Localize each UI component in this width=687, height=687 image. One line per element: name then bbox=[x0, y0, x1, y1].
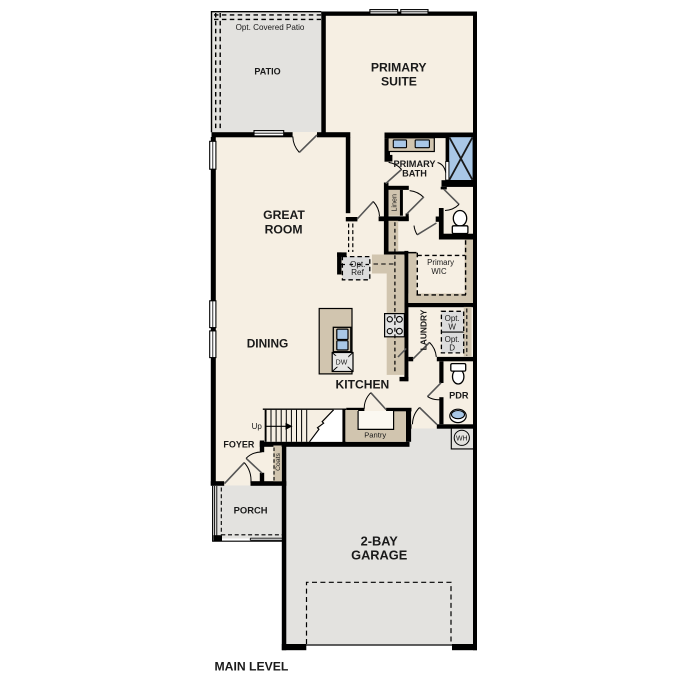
svg-text:LAUNDRY: LAUNDRY bbox=[418, 309, 428, 350]
svg-text:WIC: WIC bbox=[431, 267, 447, 276]
svg-text:DINING: DINING bbox=[247, 337, 289, 351]
svg-text:PRIMARY: PRIMARY bbox=[393, 159, 435, 169]
svg-text:DW: DW bbox=[336, 360, 348, 367]
svg-text:FOYER: FOYER bbox=[223, 440, 255, 450]
svg-text:Up: Up bbox=[252, 422, 263, 431]
svg-text:Primary: Primary bbox=[427, 258, 454, 267]
svg-text:GARAGE: GARAGE bbox=[351, 548, 408, 563]
svg-text:SUITE: SUITE bbox=[381, 74, 417, 88]
svg-text:D: D bbox=[449, 344, 455, 353]
svg-text:MAIN LEVEL: MAIN LEVEL bbox=[215, 659, 289, 673]
svg-text:PORCH: PORCH bbox=[234, 504, 268, 515]
svg-text:Coats: Coats bbox=[275, 453, 282, 471]
svg-text:PDR: PDR bbox=[449, 391, 469, 401]
svg-text:KITCHEN: KITCHEN bbox=[336, 377, 390, 391]
svg-text:GREAT: GREAT bbox=[263, 208, 305, 222]
svg-text:Linen: Linen bbox=[389, 194, 398, 212]
svg-text:WH: WH bbox=[456, 435, 468, 442]
svg-text:BATH: BATH bbox=[402, 169, 427, 179]
svg-text:W: W bbox=[448, 322, 456, 331]
svg-text:Opt. Covered Patio: Opt. Covered Patio bbox=[236, 23, 305, 32]
svg-text:PATIO: PATIO bbox=[254, 67, 280, 77]
svg-text:2-BAY: 2-BAY bbox=[361, 534, 399, 549]
svg-text:Pantry: Pantry bbox=[364, 430, 386, 439]
svg-text:Ref: Ref bbox=[351, 268, 364, 277]
svg-text:ROOM: ROOM bbox=[265, 222, 303, 236]
svg-text:PRIMARY: PRIMARY bbox=[371, 60, 427, 74]
